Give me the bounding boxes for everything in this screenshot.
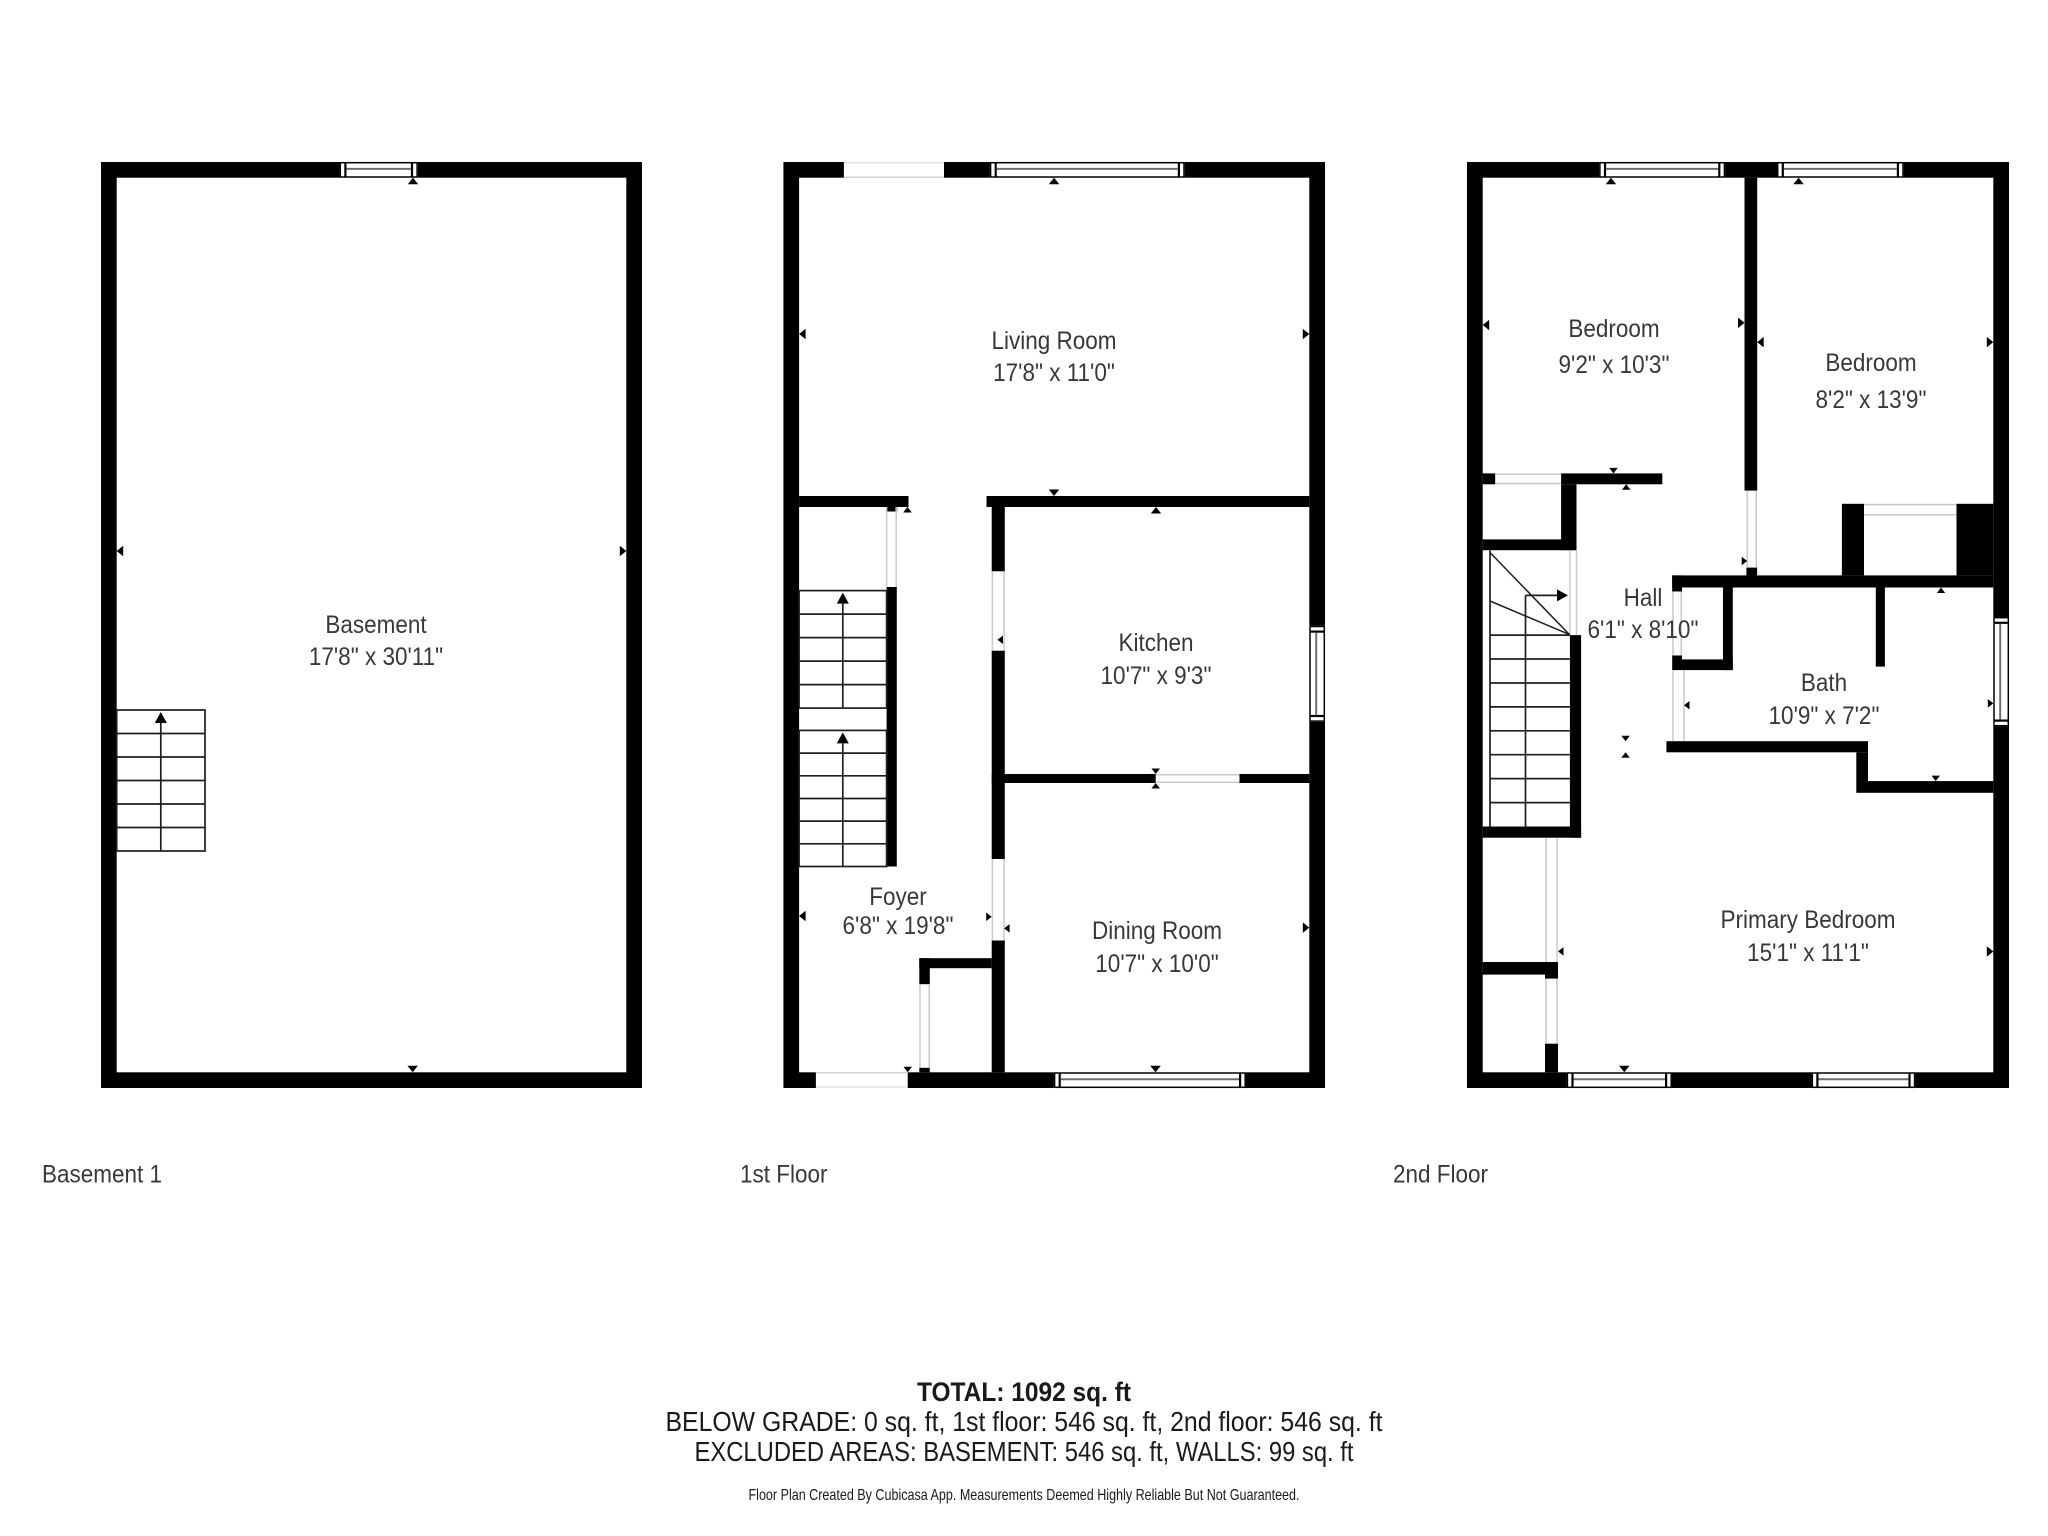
svg-text:TOTAL: 1092 sq. ft: TOTAL: 1092 sq. ft [917,1377,1131,1407]
svg-text:9'2" x 10'3": 9'2" x 10'3" [1559,351,1670,379]
svg-text:Living Room: Living Room [991,327,1116,355]
svg-text:17'8" x 11'0": 17'8" x 11'0" [993,359,1115,387]
svg-text:BELOW GRADE: 0 sq. ft, 1st flo: BELOW GRADE: 0 sq. ft, 1st floor: 546 sq… [666,1406,1383,1437]
svg-text:10'7" x 10'0": 10'7" x 10'0" [1095,950,1218,978]
svg-text:10'7" x 9'3": 10'7" x 9'3" [1101,662,1212,690]
svg-text:Floor Plan Created By Cubicasa: Floor Plan Created By Cubicasa App. Meas… [749,1487,1300,1504]
svg-text:Hall: Hall [1624,584,1663,612]
svg-text:Foyer: Foyer [869,883,927,911]
svg-text:17'8" x 30'11": 17'8" x 30'11" [309,643,443,671]
svg-text:15'1" x 11'1": 15'1" x 11'1" [1747,939,1869,967]
svg-text:Bedroom: Bedroom [1825,349,1916,377]
svg-text:Bath: Bath [1801,669,1847,697]
svg-text:Basement: Basement [325,611,426,639]
svg-text:8'2" x 13'9": 8'2" x 13'9" [1816,386,1927,414]
svg-text:10'9" x 7'2": 10'9" x 7'2" [1769,702,1880,730]
svg-text:1st Floor: 1st Floor [740,1161,828,1189]
svg-text:Kitchen: Kitchen [1118,629,1193,657]
svg-text:2nd Floor: 2nd Floor [1393,1161,1488,1189]
svg-text:Dining Room: Dining Room [1092,917,1222,945]
svg-text:EXCLUDED AREAS: BASEMENT: 546: EXCLUDED AREAS: BASEMENT: 546 sq. ft, WA… [695,1436,1354,1467]
svg-text:Primary Bedroom: Primary Bedroom [1720,906,1895,934]
svg-text:6'8" x 19'8": 6'8" x 19'8" [843,912,954,940]
svg-text:6'1" x 8'10": 6'1" x 8'10" [1588,616,1699,644]
svg-text:Bedroom: Bedroom [1568,315,1659,343]
svg-text:Basement 1: Basement 1 [42,1161,162,1189]
